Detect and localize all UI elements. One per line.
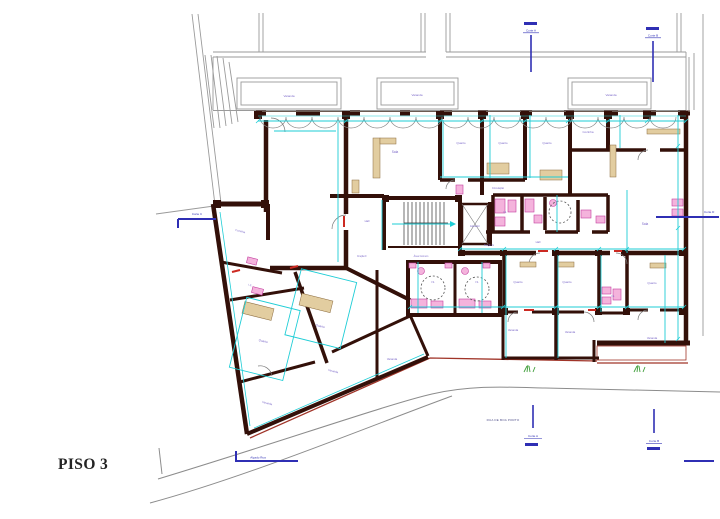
room-label: Fração F xyxy=(357,255,367,258)
section-markers: Corte A Corte B Corte C Alçado Rua Corte… xyxy=(178,22,719,462)
room-label: I.S. xyxy=(475,280,479,284)
room-label: Sala xyxy=(392,150,399,154)
elevation-marker-label: Alçado Rua xyxy=(250,456,266,460)
floor-title: PISO 3 xyxy=(58,456,108,473)
context-outline xyxy=(156,13,703,336)
section-marker-label: Corte A xyxy=(528,434,538,438)
elevator xyxy=(462,204,488,244)
room-label: I.S. xyxy=(611,294,615,298)
room-label: Varanda xyxy=(605,93,616,97)
room-label: Hall xyxy=(365,219,370,223)
section-marker-bottom-2: Corte B xyxy=(646,409,662,450)
room-label: Área Comum xyxy=(414,255,429,258)
room-label: Varanda xyxy=(387,357,398,361)
wall-junctions xyxy=(213,111,688,315)
room-label: Cozinha xyxy=(235,228,246,234)
floor-plan-canvas: Corte A Corte B Corte C Alçado Rua Corte… xyxy=(0,0,720,519)
section-marker-left: Corte C xyxy=(178,212,216,228)
section-marker-label: Corte C xyxy=(192,212,203,216)
room-label: Cozinha xyxy=(582,130,593,134)
room-label: Sala xyxy=(642,222,649,226)
room-label: Varanda xyxy=(508,328,519,332)
section-marker-label: Corte B xyxy=(648,34,658,38)
room-label: Quarto xyxy=(456,141,466,145)
street-lines xyxy=(150,387,720,503)
room-label: Varanda xyxy=(565,330,576,334)
room-label: Varanda xyxy=(283,94,294,98)
section-marker-top-2: Corte B xyxy=(645,27,661,82)
room-label: Quarto xyxy=(562,280,572,284)
room-label: Varanda xyxy=(262,400,273,406)
room-label: Quarto xyxy=(647,281,657,285)
room-label: Hall xyxy=(536,240,541,244)
staircase xyxy=(392,202,456,245)
room-label: Quarto xyxy=(315,323,325,329)
room-label: Elevador xyxy=(470,225,480,228)
section-marker-bottom-1: Corte A xyxy=(524,405,542,446)
room-label: I.S. xyxy=(431,280,435,284)
room-label: Varanda xyxy=(647,336,658,340)
room-label: Quarto xyxy=(513,280,523,284)
room-label: Quarto xyxy=(258,338,268,344)
section-marker-top-1: Corte A xyxy=(523,22,539,72)
facade-red-edges xyxy=(250,346,688,438)
room-label: Quarto xyxy=(498,141,508,145)
section-marker-label: Corte B xyxy=(649,439,659,443)
room-label: Varanda xyxy=(328,368,339,374)
room-label: I.S. xyxy=(503,210,507,214)
room-label: Circulação xyxy=(492,186,505,190)
building-walls xyxy=(213,111,690,434)
elevation-marker-street: Alçado Rua xyxy=(236,451,298,462)
room-label: Fração G xyxy=(484,244,494,247)
planting-marks xyxy=(524,365,645,372)
section-marker-label: Corte A xyxy=(526,29,536,33)
room-label: Varanda xyxy=(411,93,422,97)
floor-plan-screenshot: Corte A Corte B Corte C Alçado Rua Corte… xyxy=(0,0,720,519)
street-name: RUA DE BOA PORTO xyxy=(487,418,520,422)
section-marker-label: Corte D xyxy=(704,210,715,214)
room-label: I.S. xyxy=(248,283,253,288)
facade-scallops xyxy=(260,117,676,128)
room-label: Quarto xyxy=(542,141,552,145)
